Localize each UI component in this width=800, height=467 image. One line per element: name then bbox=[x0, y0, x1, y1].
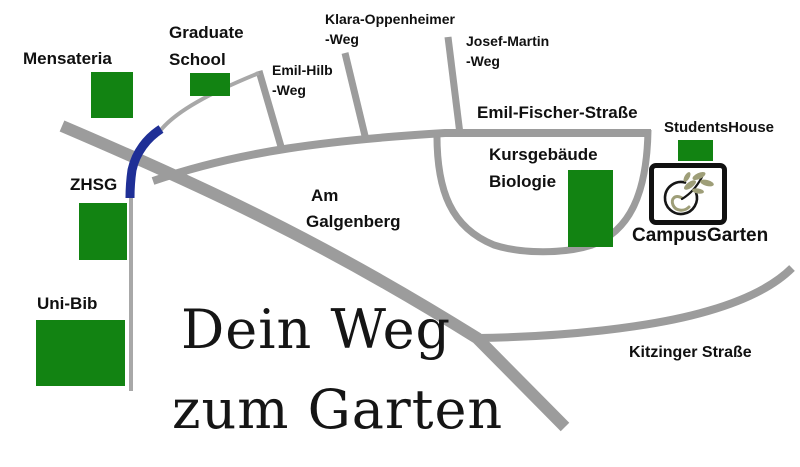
road-kitzinger-strasse bbox=[477, 268, 792, 338]
building-zhsg bbox=[79, 203, 127, 260]
label-emil-hilb-line2: -Weg bbox=[272, 83, 306, 98]
label-campus-garten: CampusGarten bbox=[632, 226, 768, 247]
label-kursgebaeude-line2: Biologie bbox=[489, 173, 556, 192]
building-uni-bib bbox=[36, 320, 125, 386]
map-title-line2: zum Garten bbox=[172, 378, 503, 441]
building-kursgebaeude-biologie bbox=[568, 170, 613, 247]
label-josef-martin-line2: -Weg bbox=[466, 54, 500, 69]
label-am-galgenberg-line1: Am bbox=[311, 187, 338, 206]
label-mensateria: Mensateria bbox=[23, 50, 112, 69]
label-emil-fischer-strasse: Emil-Fischer-Straße bbox=[477, 104, 638, 123]
label-am-galgenberg-line2: Galgenberg bbox=[306, 213, 400, 232]
label-klara-oppenheimer-line2: -Weg bbox=[325, 32, 359, 47]
building-graduate-school bbox=[190, 73, 230, 96]
label-graduate-school-line2: School bbox=[169, 51, 226, 70]
label-students-house: StudentsHouse bbox=[664, 120, 774, 137]
map-title-line1: Dein Weg bbox=[181, 298, 451, 361]
label-kursgebaeude-line1: Kursgebäude bbox=[489, 146, 598, 165]
label-klara-oppenheimer-line1: Klara-Oppenheimer bbox=[325, 12, 455, 27]
logo-swirl bbox=[672, 197, 689, 211]
campus-map: Mensateria Graduate School Klara-Oppenhe… bbox=[0, 0, 800, 467]
label-kitzinger-strasse: Kitzinger Straße bbox=[629, 344, 752, 362]
label-zhsg: ZHSG bbox=[70, 176, 117, 195]
label-uni-bib: Uni-Bib bbox=[37, 295, 97, 314]
building-students-house bbox=[678, 140, 713, 161]
building-mensateria bbox=[91, 72, 133, 118]
road-josef-martin-weg bbox=[448, 37, 460, 134]
road-klara-oppenheimer-weg bbox=[345, 53, 366, 140]
campusgarten-logo-icon bbox=[654, 168, 722, 220]
label-emil-hilb-line1: Emil-Hilb bbox=[272, 63, 333, 78]
label-graduate-school-line1: Graduate bbox=[169, 24, 244, 43]
label-josef-martin-line1: Josef-Martin bbox=[466, 34, 549, 49]
campusgarten-logo bbox=[649, 163, 727, 225]
